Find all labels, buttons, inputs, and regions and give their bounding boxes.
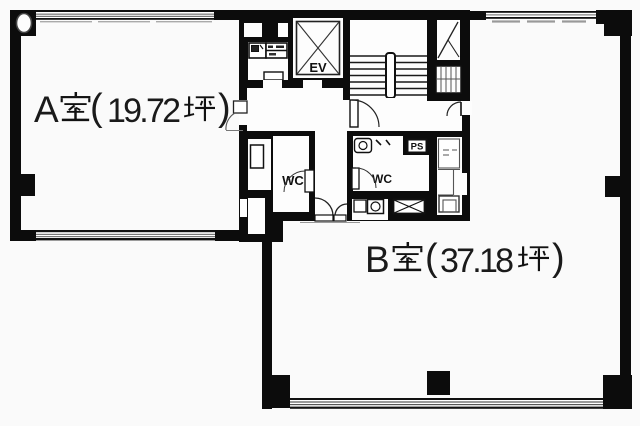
svg-text:(: ( xyxy=(90,87,103,129)
svg-text:PS: PS xyxy=(411,142,424,153)
svg-text:37.18: 37.18 xyxy=(440,242,514,280)
svg-text:): ) xyxy=(552,237,565,279)
svg-text:(: ( xyxy=(425,237,438,279)
svg-text:WC: WC xyxy=(282,173,304,188)
svg-text:WC: WC xyxy=(372,172,392,186)
svg-text:A: A xyxy=(34,89,59,130)
svg-text:EV: EV xyxy=(309,60,327,75)
svg-text:B: B xyxy=(365,239,390,280)
svg-text:): ) xyxy=(218,87,231,129)
svg-text:19.72: 19.72 xyxy=(107,92,181,130)
